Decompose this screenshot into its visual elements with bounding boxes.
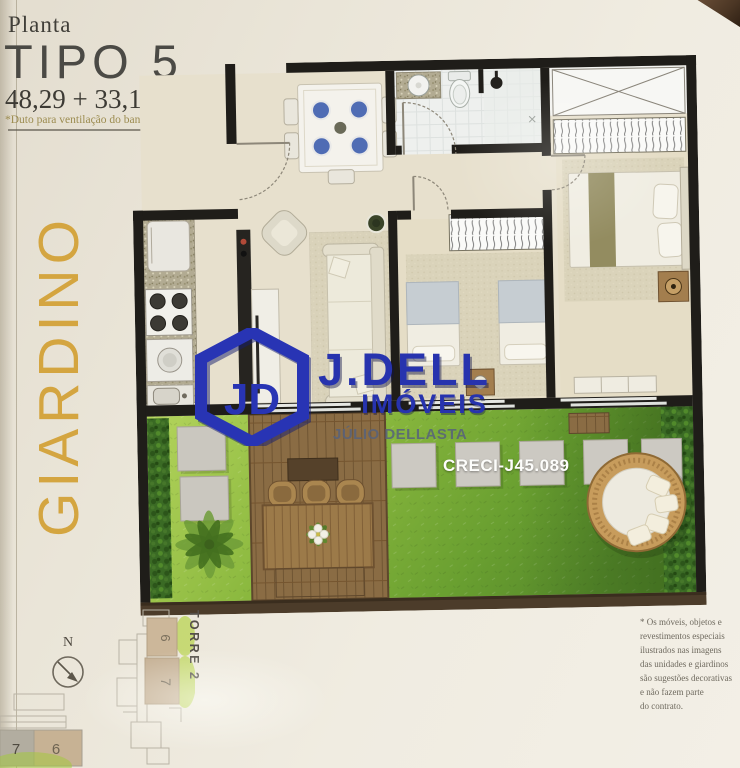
jd-monogram: JD (224, 375, 280, 424)
jd-logo-icon: JD (193, 328, 311, 446)
disclaimer-line: são sugestões decorativas (640, 672, 732, 686)
stove (145, 289, 192, 336)
disclaimer-text: * Os móveis, objetos e revestimentos esp… (640, 616, 732, 714)
unit-7-number: 7 (12, 741, 20, 758)
fridge (147, 221, 190, 272)
photo-glare (430, 58, 692, 268)
watermark-license: CRECI-J45.089 (443, 456, 570, 476)
plate (313, 137, 331, 155)
disclaimer-line: e não fazem parte (640, 686, 732, 700)
disclaimer-line: * Os móveis, objetos e (640, 616, 732, 630)
dining-set (283, 83, 397, 185)
deck-bench (276, 567, 365, 597)
dresser (574, 376, 656, 394)
kitchen-sink (147, 385, 193, 408)
watermark-agent: JÚLIO DELLASTA (333, 426, 467, 443)
washer (146, 339, 193, 382)
deck-mat (288, 458, 338, 481)
disclaimer-line: revestimentos especiais (640, 630, 732, 644)
table-surface-corner (694, 0, 740, 27)
potted-plant (367, 214, 385, 232)
watermark-category: IMÓVEIS (352, 389, 497, 420)
floorplan-page: Planta TIPO 5 48,29 + 33,16m² *Duto para… (0, 0, 740, 768)
plate (312, 101, 330, 119)
chair (284, 99, 298, 125)
kitchen (144, 221, 194, 408)
disclaimer-line: das unidades e giardinos (640, 658, 732, 672)
nightstand (658, 271, 689, 302)
disclaimer-line: ilustrados nas imagens (640, 644, 732, 658)
chair (284, 133, 298, 159)
chair (328, 170, 354, 184)
plate (350, 100, 368, 118)
giardino-label: GIARDINO (26, 176, 88, 576)
plate (351, 136, 369, 154)
disclaimer-line: do contrato. (640, 700, 732, 714)
garden-bench (569, 413, 609, 434)
hedge-left (147, 418, 172, 598)
photo-glare (40, 632, 370, 768)
